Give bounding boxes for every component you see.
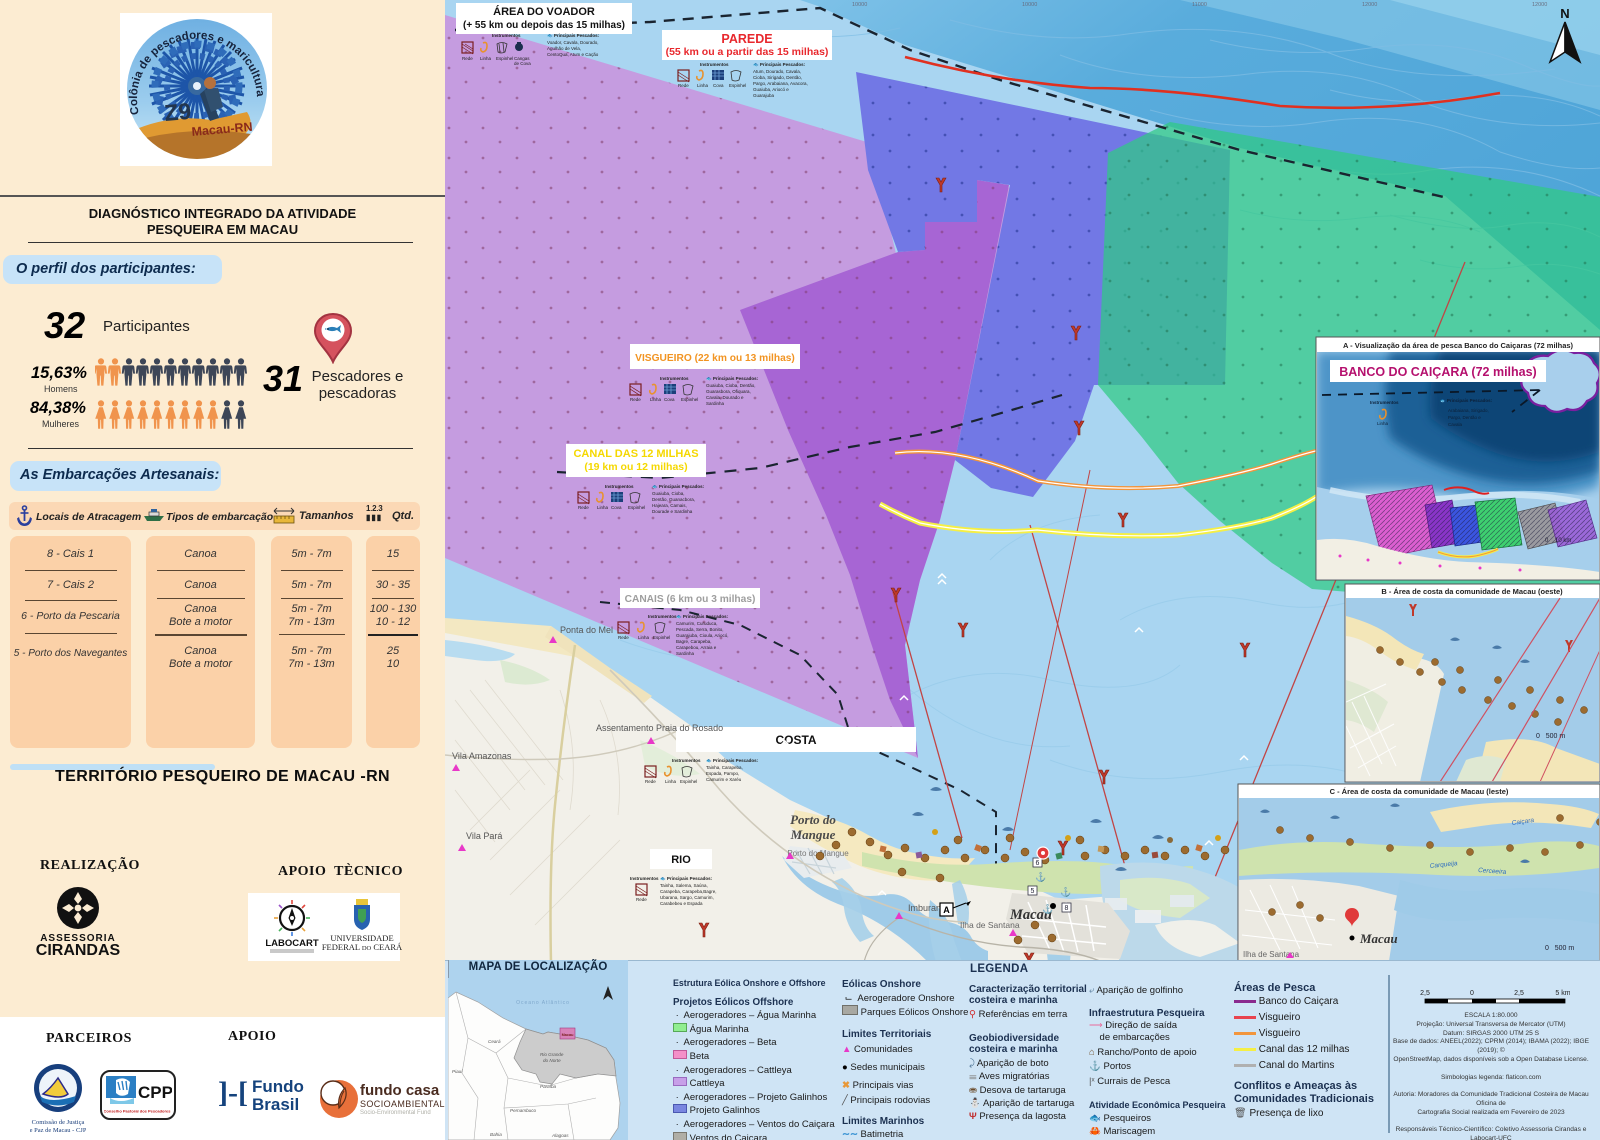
svg-text:12000: 12000 — [1532, 2, 1547, 8]
svg-text:Voador, Cavala, Dourado,: Voador, Cavala, Dourado, — [547, 40, 599, 45]
svg-text:VISGUEIRO (22 km ou 13 milhas): VISGUEIRO (22 km ou 13 milhas) — [635, 353, 795, 364]
svg-text:Bagre, Carapeba,: Bagre, Carapeba, — [676, 639, 712, 644]
svg-text:CANAL DAS 12 MILHAS: CANAL DAS 12 MILHAS — [573, 448, 698, 460]
svg-text:Pargo, Dentão e: Pargo, Dentão e — [1448, 415, 1481, 420]
svg-text:Pargo, Arabaiana, Avacora,: Pargo, Arabaiana, Avacora, — [753, 81, 808, 86]
svg-text:🐟 Principais Pescados:: 🐟 Principais Pescados: — [547, 33, 600, 38]
svg-text:N: N — [1560, 6, 1569, 21]
svg-text:Agulhão de Vela,: Agulhão de Vela, — [547, 46, 581, 51]
svg-text:Dourade e Sardinha: Dourade e Sardinha — [652, 509, 693, 514]
svg-text:🐟 Principais Pescados:: 🐟 Principais Pescados: — [706, 758, 759, 763]
svg-text:Linha: Linha — [665, 779, 677, 784]
svg-text:🐟 Principais Pescados:: 🐟 Principais Pescados: — [1440, 398, 1493, 403]
svg-text:Paraíba: Paraíba — [540, 1084, 557, 1089]
svg-text:C - Área de costa da comunidad: C - Área de costa da comunidade de Macau… — [1330, 787, 1509, 796]
svg-text:Espinhel: Espinhel — [628, 505, 645, 510]
svg-text:RIO: RIO — [671, 854, 691, 866]
svg-text:Z9: Z9 — [163, 98, 192, 126]
svg-text:LABOCART: LABOCART — [265, 938, 318, 949]
svg-text:do Norte: do Norte — [543, 1058, 561, 1063]
svg-text:Tainha, Salema, Saúna,: Tainha, Salema, Saúna, — [660, 883, 708, 888]
svg-text:Hajeara, Camais,: Hajeara, Camais, — [652, 503, 687, 508]
svg-text:(55 km ou a partir das 15 milh: (55 km ou a partir das 15 milhas) — [666, 46, 829, 58]
svg-text:Instrumentos: Instrumentos — [672, 758, 701, 763]
svg-text:🐟 Principais Pescados:: 🐟 Principais Pescados: — [660, 876, 713, 881]
svg-text:Rede: Rede — [645, 779, 656, 784]
svg-text:Guarajuba, Cioula, Ariocó,: Guarajuba, Cioula, Ariocó, — [676, 633, 729, 638]
svg-text:2,5: 2,5 — [1420, 990, 1430, 997]
svg-text:Guarajuba: Guarajuba — [753, 93, 775, 98]
svg-text:e Paz de Macau - CJP: e Paz de Macau - CJP — [30, 1127, 86, 1134]
svg-text:Carapeba, Carapeba,Bagre,: Carapeba, Carapeba,Bagre, — [660, 889, 717, 894]
svg-text:Arabaiana, Sirigado,: Arabaiana, Sirigado, — [1448, 408, 1489, 413]
svg-text:Instrumentos: Instrumentos — [1370, 400, 1399, 405]
svg-text:Espinhel: Espinhel — [680, 779, 697, 784]
svg-text:0 500 m: 0 500 m — [1545, 945, 1574, 952]
svg-text:(19 km ou 12 milhas): (19 km ou 12 milhas) — [584, 461, 687, 473]
svg-text:Comissão de Justiça: Comissão de Justiça — [32, 1119, 85, 1126]
svg-text:Guaiuba, Ariocó e: Guaiuba, Ariocó e — [753, 87, 789, 92]
svg-text:Ilha de Santana: Ilha de Santana — [960, 920, 1020, 930]
svg-text:0: 0 — [1470, 990, 1474, 997]
svg-text:Macau: Macau — [562, 1033, 574, 1037]
svg-text:Guarasbora, Ofiquara,: Guarasbora, Ofiquara, — [706, 389, 751, 394]
svg-text:Pernambuco: Pernambuco — [510, 1108, 536, 1113]
svg-text:Ubarana, Sargo, Camurim,: Ubarana, Sargo, Camurim, — [660, 895, 714, 900]
svg-text:Rede: Rede — [462, 56, 473, 61]
svg-text:Mangue: Mangue — [790, 827, 836, 842]
svg-text:Vila Amazonas: Vila Amazonas — [452, 751, 512, 761]
svg-text:Rede: Rede — [578, 505, 589, 510]
svg-text:5: 5 — [1031, 888, 1035, 895]
svg-text:10000: 10000 — [1022, 2, 1037, 8]
svg-text:FEDERAL DO CEARÁ: FEDERAL DO CEARÁ — [322, 942, 402, 952]
svg-text:Linha: Linha — [1377, 421, 1389, 426]
svg-text:Camurim e Xaréu: Camurim e Xaréu — [706, 777, 742, 782]
svg-text:Instrumentos: Instrumentos — [700, 62, 729, 67]
svg-text:Atum, Dourado, Cavala,: Atum, Dourado, Cavala, — [753, 69, 801, 74]
svg-text:Pescada, Serra, Bonito,: Pescada, Serra, Bonito, — [676, 627, 724, 632]
svg-text:Cavala: Cavala — [1448, 422, 1463, 427]
svg-text:Espinhel: Espinhel — [681, 397, 698, 402]
svg-text:Linha: Linha — [697, 83, 709, 88]
svg-text:Rede: Rede — [618, 635, 629, 640]
svg-text:Instrumentos: Instrumentos — [660, 376, 689, 381]
svg-text:Ceará: Ceará — [488, 1039, 501, 1044]
svg-text:Espinhel: Espinhel — [729, 83, 746, 88]
svg-text:Rede: Rede — [630, 397, 641, 402]
svg-text:Porto do: Porto do — [790, 812, 836, 827]
svg-text:CentoQua, Atum e Cação: CentoQua, Atum e Cação — [547, 52, 599, 57]
svg-text:Bahia: Bahia — [490, 1132, 502, 1137]
svg-text:B - Área de costa da comunidad: B - Área de costa da comunidade de Macau… — [1381, 587, 1563, 596]
svg-text:Linha: Linha — [480, 56, 492, 61]
svg-text:Vila Pará: Vila Pará — [466, 831, 502, 841]
svg-text:⚓: ⚓ — [1035, 871, 1046, 882]
svg-text:2,5: 2,5 — [1514, 990, 1524, 997]
svg-text:⚓: ⚓ — [1042, 903, 1053, 914]
svg-text:CPP: CPP — [138, 1083, 172, 1102]
svg-text:6: 6 — [1036, 860, 1040, 867]
svg-text:Camurim, Curuduca,: Camurim, Curuduca, — [676, 621, 718, 626]
svg-text:Cavala, Dourado e: Cavala, Dourado e — [706, 395, 744, 400]
svg-text:0 10 km: 0 10 km — [1545, 538, 1571, 544]
svg-text:Espinhel: Espinhel — [653, 635, 670, 640]
svg-text:Instrumentos: Instrumentos — [605, 484, 634, 489]
svg-text:Linha: Linha — [597, 505, 609, 510]
svg-text:🐟 Principais Pescados:: 🐟 Principais Pescados: — [706, 376, 759, 381]
svg-text:Sardinha: Sardinha — [706, 401, 725, 406]
svg-text:Cioba, Sirigado, Dentão,: Cioba, Sirigado, Dentão, — [753, 75, 802, 80]
svg-text:Carabebeu e Espada: Carabebeu e Espada — [660, 901, 703, 906]
svg-text:BANCO DO CAIÇARA (72 milhas): BANCO DO CAIÇARA (72 milhas) — [1339, 365, 1536, 379]
svg-text:Cova: Cova — [713, 83, 724, 88]
svg-text:8: 8 — [1065, 905, 1069, 912]
svg-text:Ponta do Mel: Ponta do Mel — [560, 625, 613, 635]
svg-text:Piauí: Piauí — [452, 1069, 463, 1074]
svg-text:12000: 12000 — [1362, 2, 1377, 8]
svg-text:A: A — [943, 905, 950, 915]
svg-text:🐟 Principais Pescados:: 🐟 Principais Pescados: — [676, 614, 729, 619]
svg-text:Sardinha: Sardinha — [676, 651, 695, 656]
svg-text:A - Visualização da área de pe: A - Visualização da área de pesca Banco … — [1343, 341, 1574, 350]
svg-text:Rede: Rede — [636, 897, 647, 902]
svg-text:Guaiuba, Cioba, Dentão,: Guaiuba, Cioba, Dentão, — [706, 383, 756, 388]
svg-text:Linha: Linha — [650, 397, 662, 402]
svg-text:🐟 Principais Pescados:: 🐟 Principais Pescados: — [753, 62, 806, 67]
svg-text:Dentão, Guanacbora,: Dentão, Guanacbora, — [652, 497, 695, 502]
svg-text:5 km: 5 km — [1555, 990, 1570, 997]
svg-text:Rio Grande: Rio Grande — [540, 1052, 564, 1057]
svg-text:Instrumentos: Instrumentos — [630, 876, 659, 881]
svg-text:ÁREA DO VOADOR: ÁREA DO VOADOR — [493, 5, 595, 18]
svg-text:Carapebou, Arraia e: Carapebou, Arraia e — [676, 645, 717, 650]
svg-text:CANAIS (6 km ou 3 milhas): CANAIS (6 km ou 3 milhas) — [625, 594, 756, 605]
svg-text:Macau: Macau — [1359, 931, 1398, 946]
svg-text:Conselho Pastoral dos Pescador: Conselho Pastoral dos Pescadores — [104, 1109, 171, 1114]
svg-text:Oceano Atlântico: Oceano Atlântico — [516, 1000, 570, 1006]
svg-text:Instrumentos: Instrumentos — [492, 33, 521, 38]
svg-text:Guaiuba, Cioba,: Guaiuba, Cioba, — [652, 491, 685, 496]
svg-text:Assentamento Praia do Rosado: Assentamento Praia do Rosado — [596, 723, 723, 733]
svg-text:Linha: Linha — [638, 635, 650, 640]
svg-text:10000: 10000 — [852, 2, 867, 8]
svg-text:de Cova: de Cova — [514, 61, 531, 66]
svg-text:⚓: ⚓ — [1060, 886, 1071, 897]
svg-text:0 500 m: 0 500 m — [1536, 733, 1565, 740]
svg-text:PAREDE: PAREDE — [721, 32, 772, 46]
svg-text:Tainha, Carapeba,: Tainha, Carapeba, — [706, 765, 743, 770]
svg-text:Cova: Cova — [611, 505, 622, 510]
svg-text:11000: 11000 — [1192, 2, 1207, 8]
svg-text:Espada, Pampo,: Espada, Pampo, — [706, 771, 739, 776]
svg-text:Espinhel: Espinhel — [496, 56, 513, 61]
svg-text:(+ 55 km ou depois das 15 milh: (+ 55 km ou depois das 15 milhas) — [463, 20, 625, 31]
svg-text:Instrumentos: Instrumentos — [648, 614, 677, 619]
svg-text:🐟 Principais Pescados:: 🐟 Principais Pescados: — [652, 484, 705, 489]
svg-text:Cova: Cova — [664, 397, 675, 402]
svg-text:Alagoas: Alagoas — [551, 1133, 569, 1138]
svg-text:Rede: Rede — [678, 83, 689, 88]
